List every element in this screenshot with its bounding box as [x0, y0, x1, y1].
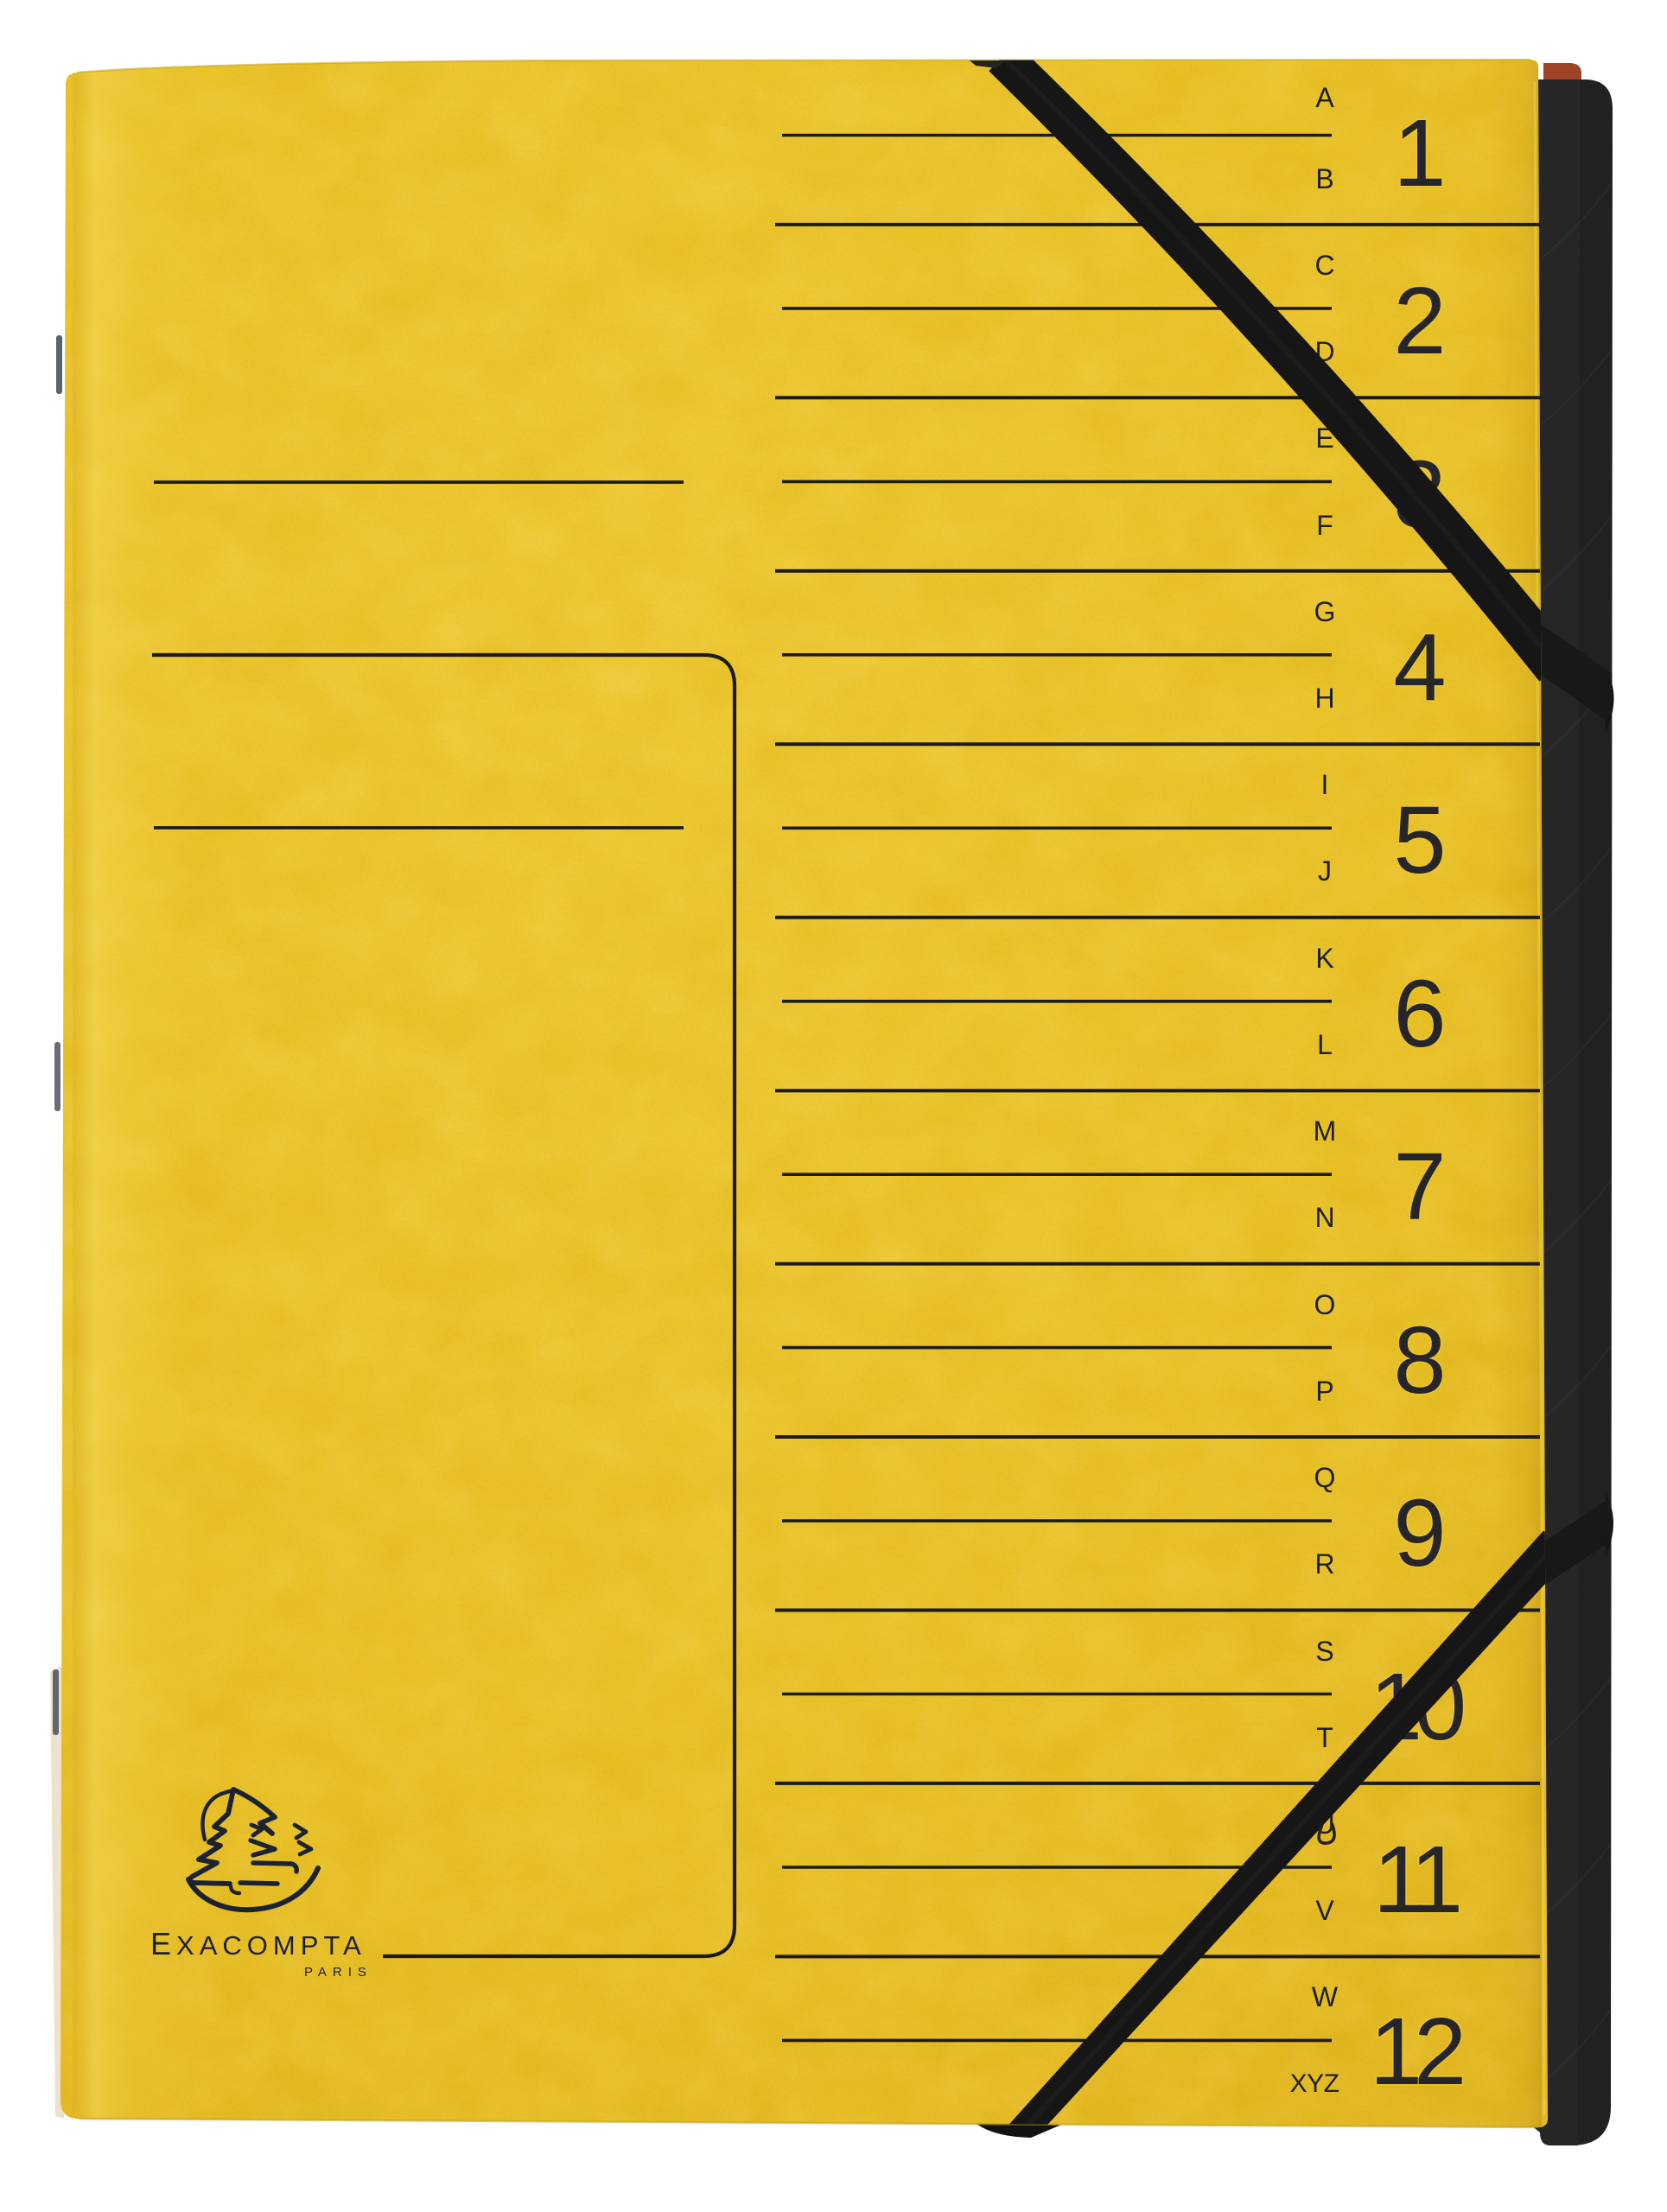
svg-text:M: M: [1314, 1116, 1337, 1147]
svg-text:L: L: [1317, 1029, 1333, 1060]
svg-text:J: J: [1318, 855, 1332, 887]
svg-text:T: T: [1316, 1722, 1333, 1753]
svg-text:2: 2: [1393, 268, 1446, 374]
svg-text:C: C: [1314, 250, 1334, 281]
svg-text:G: G: [1314, 596, 1336, 627]
svg-text:I: I: [1321, 769, 1329, 800]
svg-text:Q: Q: [1314, 1462, 1336, 1493]
svg-text:11: 11: [1373, 1827, 1459, 1933]
svg-text:P: P: [1315, 1376, 1333, 1407]
svg-text:PARIS: PARIS: [304, 1965, 372, 1980]
svg-text:S: S: [1315, 1636, 1333, 1667]
svg-text:9: 9: [1393, 1480, 1446, 1586]
svg-text:K: K: [1315, 943, 1333, 974]
svg-text:A: A: [1315, 82, 1334, 113]
svg-text:V: V: [1315, 1895, 1334, 1926]
svg-text:8: 8: [1393, 1307, 1446, 1414]
svg-text:6: 6: [1393, 961, 1446, 1067]
svg-text:F: F: [1316, 510, 1333, 541]
svg-text:EXACOMPTA: EXACOMPTA: [150, 1926, 366, 1961]
svg-text:O: O: [1314, 1289, 1336, 1320]
svg-text:XYZ: XYZ: [1290, 2069, 1339, 2098]
svg-text:1: 1: [1393, 100, 1446, 207]
svg-text:5: 5: [1393, 787, 1446, 893]
svg-text:W: W: [1312, 1981, 1339, 2012]
svg-text:7: 7: [1393, 1134, 1446, 1240]
svg-text:R: R: [1314, 1548, 1334, 1580]
svg-text:N: N: [1314, 1202, 1334, 1233]
svg-text:H: H: [1314, 683, 1334, 714]
svg-text:B: B: [1315, 163, 1333, 194]
svg-text:4: 4: [1393, 614, 1446, 721]
svg-text:12: 12: [1370, 1999, 1462, 2105]
